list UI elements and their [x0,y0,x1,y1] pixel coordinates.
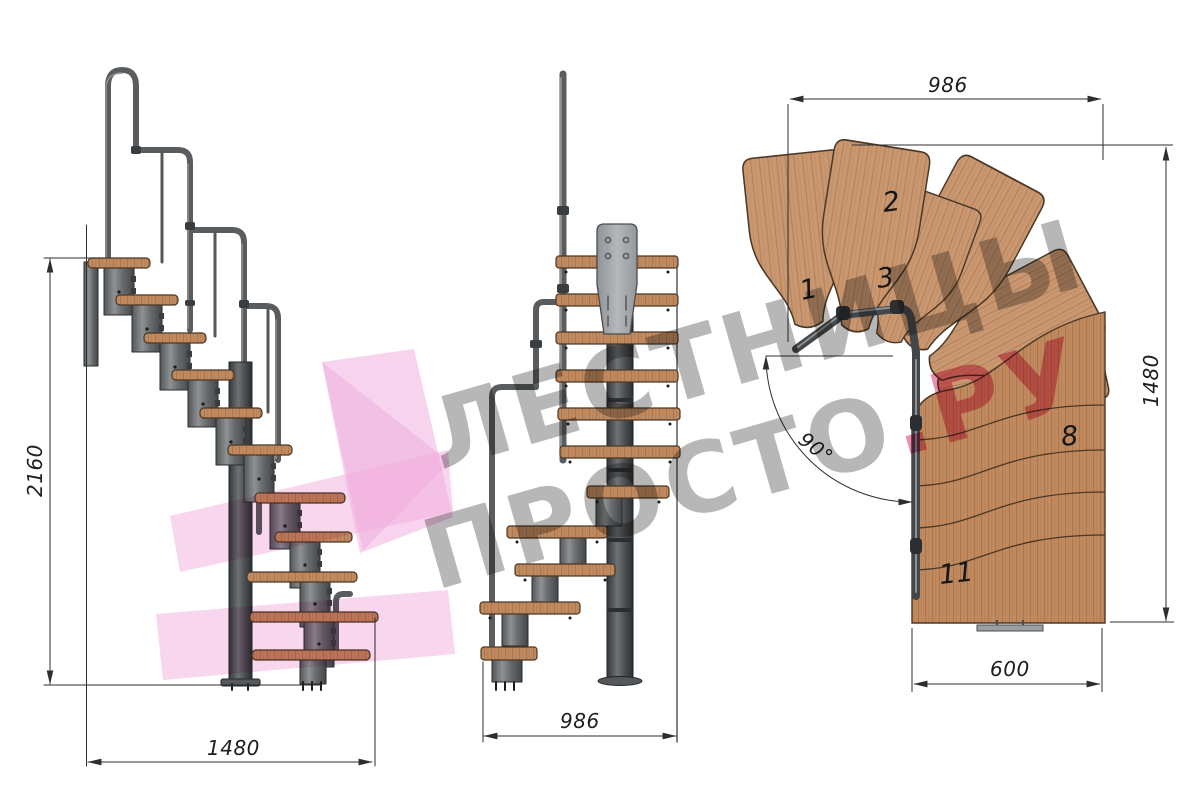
plan-top-dimension: 986 [928,73,968,97]
side-height-dimension: 2160 [23,444,47,497]
plan-right-dimension: 1480 [1139,354,1163,407]
front-width-dimension: 986 [560,709,600,733]
plan-tread-label-11: 11 [937,557,974,591]
mounting-plate [597,224,637,334]
side-width-dimension: 1480 [207,736,260,760]
drawing-canvas: 2160 1480 [0,0,1200,807]
plan-bottom-dimension: 600 [990,657,1030,681]
staircase-technical-drawing: 2160 1480 [0,0,1200,807]
